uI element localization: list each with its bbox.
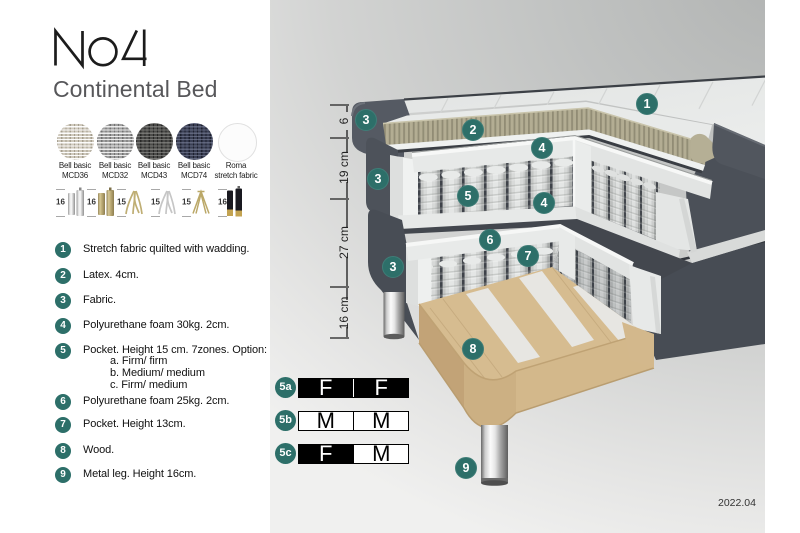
- svg-text:1: 1: [644, 97, 651, 111]
- svg-text:27 cm: 27 cm: [337, 226, 351, 259]
- svg-text:4: 4: [541, 196, 548, 210]
- svg-text:6: 6: [487, 233, 494, 247]
- svg-text:5: 5: [465, 189, 472, 203]
- svg-text:19 cm: 19 cm: [337, 151, 351, 184]
- svg-text:3: 3: [363, 113, 370, 127]
- svg-text:8: 8: [470, 342, 477, 356]
- svg-text:16 cm: 16 cm: [337, 297, 351, 330]
- svg-text:2: 2: [470, 123, 477, 137]
- svg-text:7: 7: [525, 249, 532, 263]
- svg-text:3: 3: [390, 260, 397, 274]
- svg-text:3: 3: [375, 172, 382, 186]
- svg-text:6: 6: [337, 117, 351, 124]
- svg-text:9: 9: [463, 461, 470, 475]
- svg-text:4: 4: [539, 141, 546, 155]
